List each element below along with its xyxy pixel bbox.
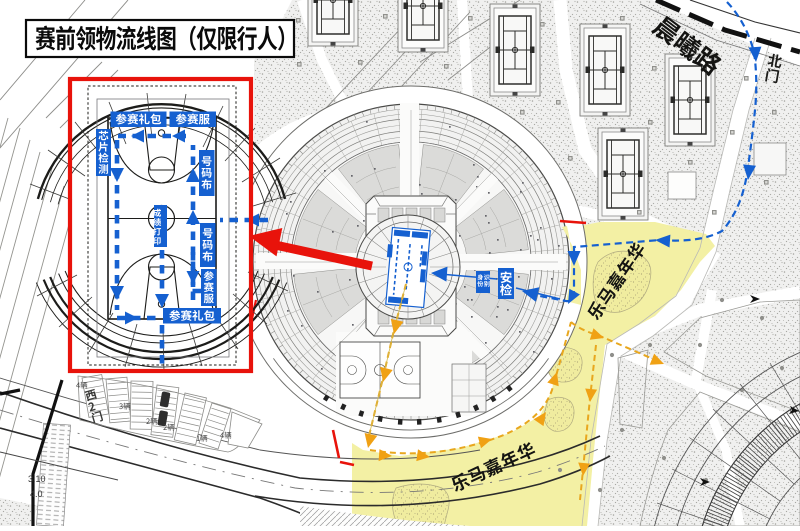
svg-text:3.10: 3.10 [28,474,46,484]
svg-text:4.0: 4.0 [30,489,43,499]
